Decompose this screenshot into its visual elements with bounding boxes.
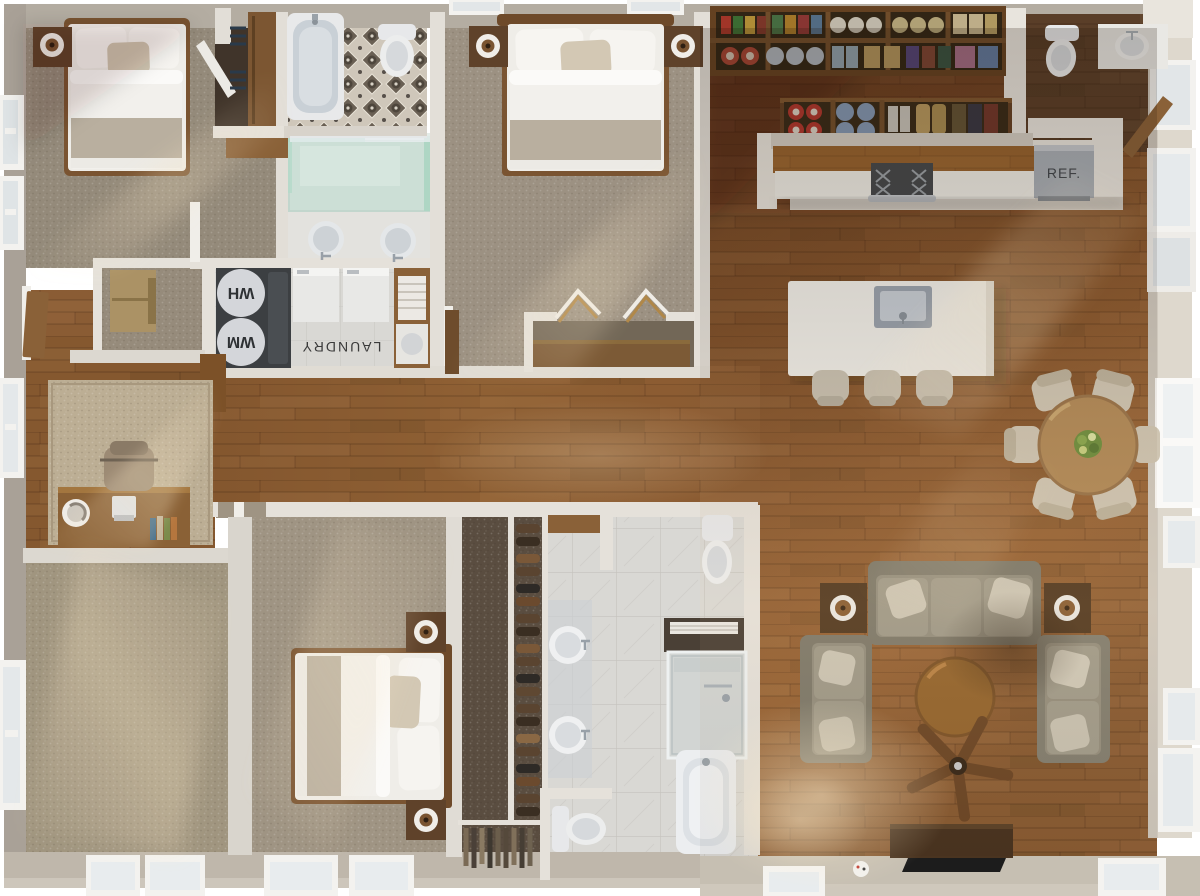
svg-text:LAUNDRY: LAUNDRY xyxy=(301,339,382,355)
svg-text:WM: WM xyxy=(227,333,255,350)
svg-text:WH: WH xyxy=(228,284,255,301)
